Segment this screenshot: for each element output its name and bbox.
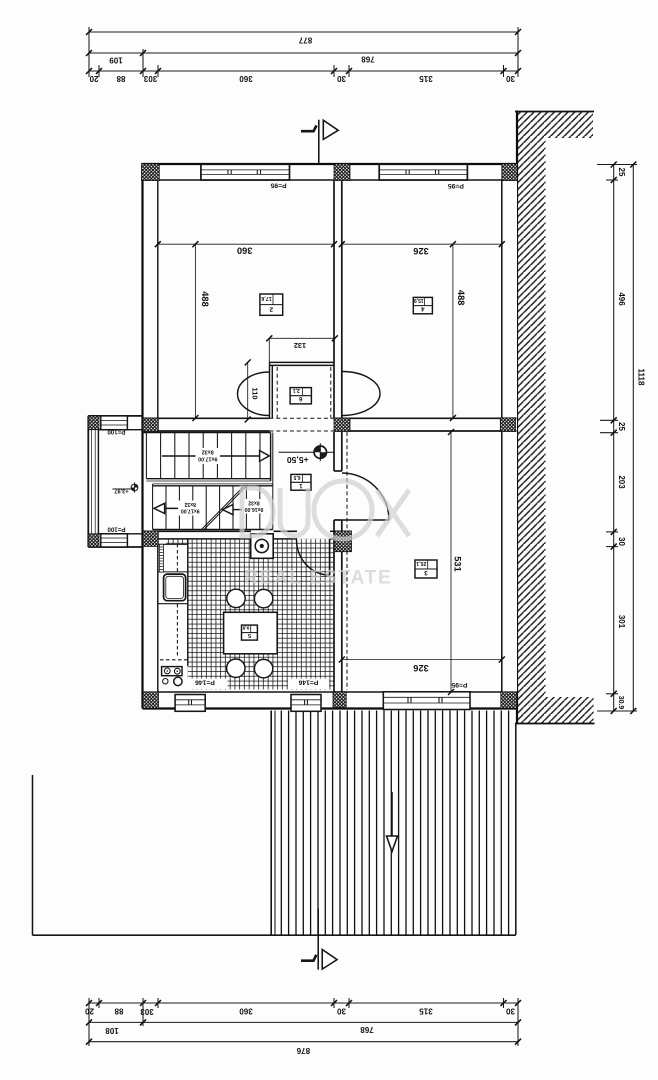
- svg-text:9,8: 9,8: [242, 624, 249, 630]
- svg-text:9x16.00: 9x16.00: [245, 506, 264, 512]
- svg-text:303: 303: [143, 74, 157, 83]
- svg-text:109: 109: [109, 56, 123, 65]
- svg-text:88: 88: [116, 74, 125, 83]
- svg-text:20: 20: [85, 1007, 94, 1016]
- svg-text:2,1: 2,1: [293, 387, 300, 393]
- svg-text:301: 301: [617, 615, 626, 629]
- svg-text:768: 768: [361, 55, 375, 64]
- svg-text:488: 488: [200, 291, 210, 307]
- svg-text:30: 30: [506, 74, 515, 83]
- svg-text:8x32: 8x32: [202, 449, 214, 455]
- svg-text:30.9: 30.9: [617, 696, 624, 710]
- svg-text:360: 360: [237, 246, 253, 256]
- svg-text:496: 496: [617, 292, 626, 306]
- svg-text:P=95: P=95: [451, 681, 467, 688]
- svg-text:326: 326: [413, 246, 429, 256]
- svg-text:P=100: P=100: [107, 428, 126, 435]
- svg-text:25: 25: [617, 422, 626, 431]
- svg-text:110: 110: [250, 388, 259, 400]
- svg-text:P=146: P=146: [195, 679, 215, 686]
- svg-text:P=100: P=100: [107, 526, 126, 533]
- svg-text:1118: 1118: [637, 369, 646, 386]
- svg-text:P=95: P=95: [270, 181, 286, 188]
- svg-text:P=95: P=95: [448, 182, 464, 189]
- svg-text:768: 768: [360, 1025, 374, 1034]
- svg-text:30: 30: [506, 1007, 515, 1016]
- svg-text:132: 132: [294, 341, 306, 350]
- svg-text:6,5: 6,5: [293, 474, 300, 480]
- svg-text:108: 108: [105, 1026, 119, 1035]
- svg-text:30: 30: [617, 537, 626, 546]
- svg-text:30: 30: [337, 74, 346, 83]
- svg-text:877: 877: [298, 36, 312, 45]
- svg-text:315: 315: [419, 74, 433, 83]
- svg-text:531: 531: [453, 556, 463, 572]
- svg-text:P=146: P=146: [298, 679, 318, 686]
- svg-text:25,1: 25,1: [416, 560, 426, 566]
- svg-text:315: 315: [419, 1007, 433, 1016]
- svg-text:303: 303: [140, 1007, 154, 1016]
- svg-text:17,6: 17,6: [261, 295, 272, 301]
- svg-text:2: 2: [269, 305, 273, 312]
- svg-text:876: 876: [296, 1046, 310, 1055]
- svg-text:REAL ESTATE: REAL ESTATE: [244, 568, 393, 589]
- svg-text:+5,50: +5,50: [287, 455, 309, 465]
- svg-text:20: 20: [89, 74, 98, 83]
- svg-text:15,9: 15,9: [414, 297, 424, 303]
- svg-text:9x17.00: 9x17.00: [198, 456, 218, 462]
- svg-text:9x17.00: 9x17.00: [181, 508, 200, 514]
- svg-text:88: 88: [114, 1007, 123, 1016]
- svg-text:360: 360: [239, 1007, 253, 1016]
- svg-text:203: 203: [617, 475, 626, 489]
- svg-text:30: 30: [337, 1007, 346, 1016]
- svg-text:3: 3: [424, 569, 428, 576]
- svg-text:8x32: 8x32: [184, 501, 196, 507]
- svg-text:326: 326: [413, 663, 429, 673]
- svg-text:8x32: 8x32: [248, 499, 260, 505]
- svg-text:+3,97: +3,97: [114, 487, 128, 493]
- svg-text:360: 360: [239, 74, 253, 83]
- svg-text:488: 488: [456, 290, 466, 306]
- svg-text:25: 25: [617, 168, 626, 177]
